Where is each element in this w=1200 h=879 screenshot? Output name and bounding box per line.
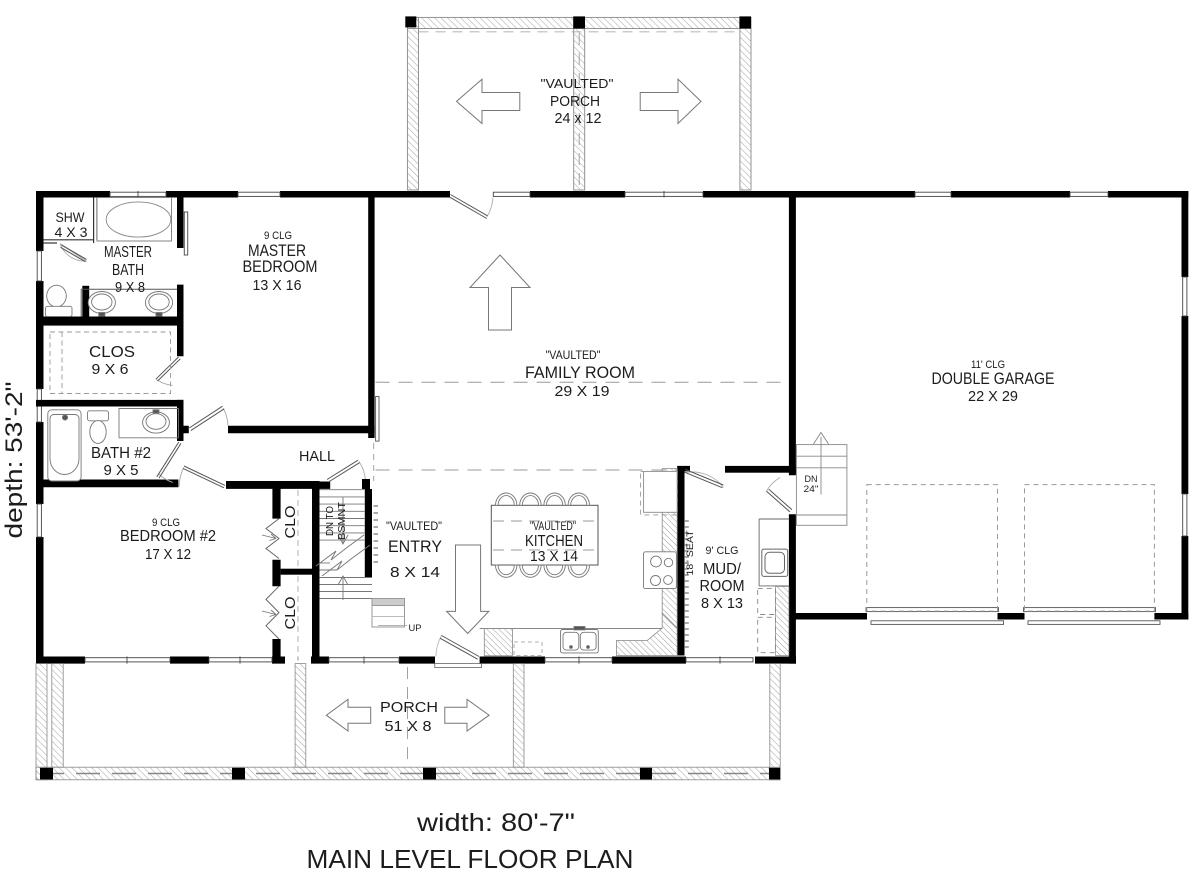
svg-text:UP: UP <box>409 623 422 633</box>
svg-text:9 X 5: 9 X 5 <box>104 462 139 479</box>
svg-text:BSMNT: BSMNT <box>337 502 348 540</box>
svg-text:DN TO: DN TO <box>325 506 336 536</box>
svg-text:9 X 6: 9 X 6 <box>92 361 129 378</box>
svg-text:24 x 12: 24 x 12 <box>555 110 602 127</box>
svg-text:CLOS: CLOS <box>89 344 135 361</box>
svg-text:9 X 8: 9 X 8 <box>115 279 145 296</box>
svg-text:BEDROOM: BEDROOM <box>243 257 318 276</box>
svg-text:17 X 12: 17 X 12 <box>145 546 191 563</box>
svg-text:CLO: CLO <box>282 597 299 630</box>
svg-text:"VAULTED": "VAULTED" <box>386 519 442 533</box>
svg-text:29 X 19: 29 X 19 <box>555 383 610 400</box>
svg-text:width: 80'-7": width: 80'-7" <box>416 809 575 837</box>
svg-text:MUD/: MUD/ <box>703 561 742 578</box>
svg-text:18" SEAT: 18" SEAT <box>685 530 696 575</box>
svg-text:24": 24" <box>804 484 819 494</box>
svg-text:SHW: SHW <box>56 209 86 225</box>
svg-text:BEDROOM #2: BEDROOM #2 <box>120 528 216 545</box>
svg-text:FAMILY ROOM: FAMILY ROOM <box>525 363 635 382</box>
svg-text:"VAULTED": "VAULTED" <box>530 519 576 533</box>
svg-text:BATH: BATH <box>112 262 144 279</box>
svg-text:DN: DN <box>805 474 818 484</box>
svg-text:PORCH: PORCH <box>550 93 600 110</box>
svg-text:9' CLG: 9' CLG <box>706 545 739 557</box>
svg-text:CLO: CLO <box>282 506 299 539</box>
svg-text:51 X 8: 51 X 8 <box>385 718 432 735</box>
svg-text:8 X 14: 8 X 14 <box>390 564 440 581</box>
svg-text:HALL: HALL <box>299 448 335 465</box>
svg-text:PORCH: PORCH <box>380 699 438 716</box>
svg-text:13 X 16: 13 X 16 <box>253 277 302 294</box>
svg-text:MAIN LEVEL FLOOR PLAN: MAIN LEVEL FLOOR PLAN <box>307 844 634 874</box>
svg-text:BATH #2: BATH #2 <box>91 445 151 462</box>
svg-text:4 X 3: 4 X 3 <box>55 224 88 240</box>
svg-text:ROOM: ROOM <box>700 578 745 595</box>
svg-text:22 X 29: 22 X 29 <box>968 388 1018 405</box>
svg-text:MASTER: MASTER <box>104 244 152 261</box>
svg-text:"VAULTED": "VAULTED" <box>541 76 614 91</box>
svg-text:depth: 53'-2": depth: 53'-2" <box>1 382 28 539</box>
svg-text:DOUBLE GARAGE: DOUBLE GARAGE <box>932 369 1055 388</box>
svg-text:ENTRY: ENTRY <box>388 537 442 556</box>
svg-text:"VAULTED": "VAULTED" <box>546 348 601 362</box>
svg-text:8 X 13: 8 X 13 <box>701 595 743 612</box>
svg-text:13 X 14: 13 X 14 <box>530 548 578 565</box>
